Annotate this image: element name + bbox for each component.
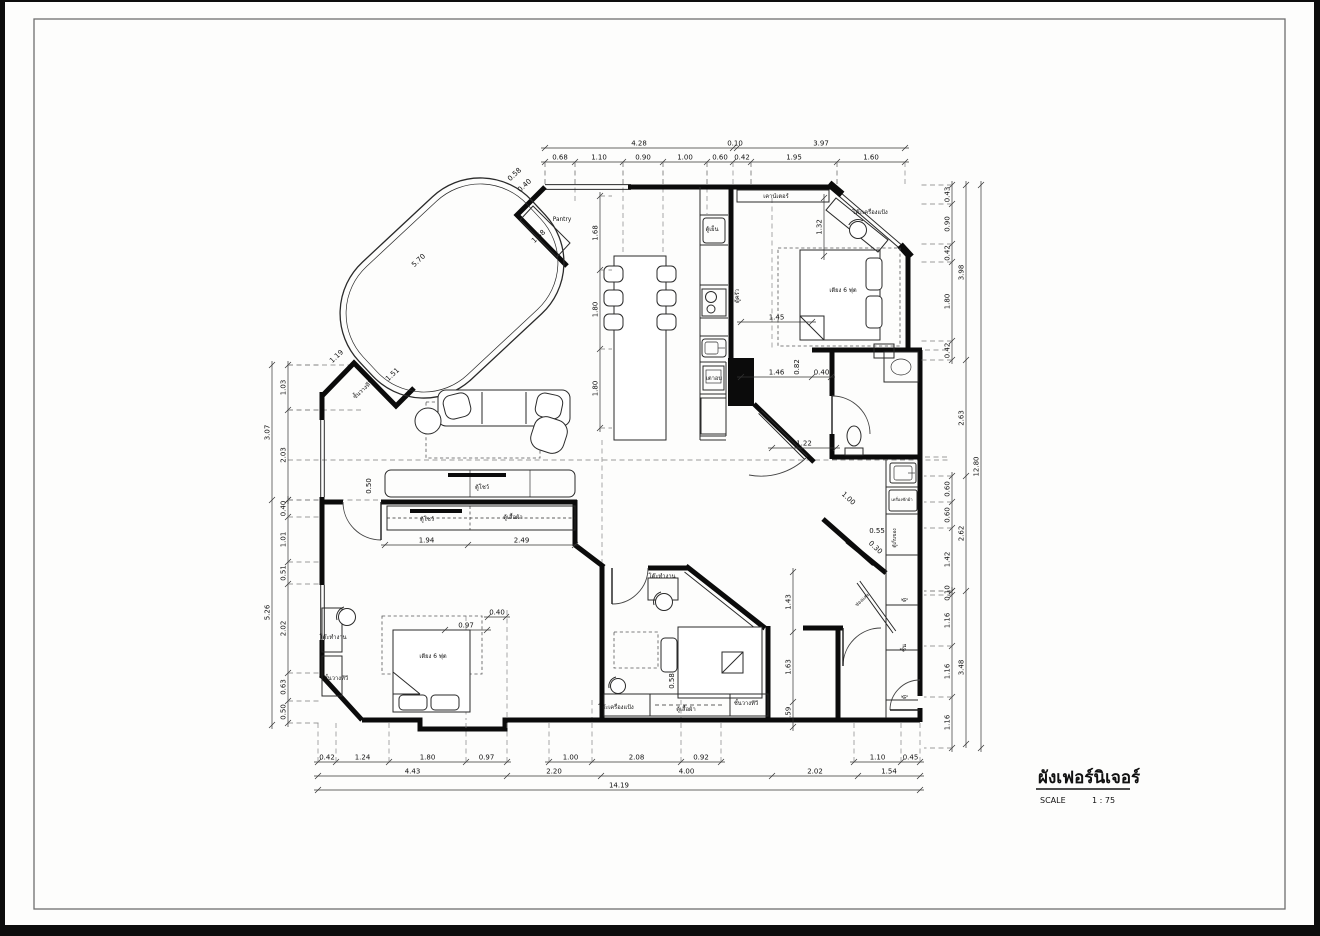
- dim-label: 1.42: [944, 552, 952, 568]
- dim-label: 1.00: [563, 754, 579, 762]
- dim-label: 1.80: [944, 294, 952, 310]
- dim-label: 1.16: [944, 663, 952, 679]
- dim-label: 1.24: [355, 754, 371, 762]
- dim-label: 1.95: [786, 154, 802, 162]
- bed3-pillow-2: [431, 695, 459, 710]
- bed1-pillow-1: [866, 258, 882, 290]
- dim-label: 0.97: [458, 622, 474, 630]
- dim-label: 0.68: [552, 154, 568, 162]
- dim-label: 4.00: [679, 768, 695, 776]
- dim-label: 0.60: [944, 507, 952, 523]
- dim-label: 0.50: [365, 478, 373, 494]
- room-label: Pantry: [553, 217, 572, 223]
- dim-label: 1.16: [944, 612, 952, 628]
- dim-label: 1.10: [870, 754, 886, 762]
- dim-label: 2.08: [629, 754, 645, 762]
- dim-label: 0.45: [903, 754, 919, 762]
- dim-label: 1.80: [592, 381, 600, 397]
- dim-label: 2.02: [807, 768, 823, 776]
- drawing-title: ผังเฟอร์นิเจอร์: [1038, 767, 1141, 788]
- dim-label: 3.98: [958, 265, 966, 281]
- dim-label: 0.55: [869, 527, 885, 535]
- dim-label: 1.45: [769, 314, 785, 322]
- dim-label: 0.40: [814, 369, 830, 377]
- dim-label: 0.92: [693, 754, 709, 762]
- dim-label: 1.32: [816, 219, 824, 235]
- room-label: ตู้ครัว: [733, 289, 741, 303]
- room-label: เตียง 6 ฟุต: [419, 653, 446, 660]
- dim-label: 0.40: [280, 501, 288, 517]
- dim-label: 2.20: [546, 768, 562, 776]
- room-label: ตู้โชว์: [475, 483, 489, 491]
- dim-label: 0.10: [944, 585, 952, 601]
- tv-top: [448, 473, 506, 477]
- dim-label: 2.02: [280, 621, 288, 637]
- dining-table: [614, 256, 666, 440]
- side-table: [415, 408, 441, 434]
- floor-plan-drawing: 4.280.103.970.681.100.901.000.600.421.95…: [0, 0, 1320, 936]
- room-label: โต๊ะทำงาน: [648, 572, 675, 580]
- dim-label: 1.60: [863, 154, 879, 162]
- room-label: เตาอบ: [706, 376, 722, 382]
- dim-label: 0.60: [712, 154, 728, 162]
- room-label: เคาน์เตอร์: [763, 192, 788, 200]
- bed2-pillow: [661, 638, 677, 672]
- dim-label: 1.80: [420, 754, 436, 762]
- dim-label: 0.42: [319, 754, 335, 762]
- dim-label: 1.01: [280, 532, 288, 548]
- dim-label: 0.42: [944, 245, 952, 261]
- dim-label: 0.51: [280, 565, 288, 581]
- dim-label: 4.43: [405, 768, 421, 776]
- dim-label: 1.94: [419, 537, 435, 545]
- dim-label: 1.63: [785, 659, 793, 675]
- dim-label: 2.62: [958, 526, 966, 542]
- dim-label: 1.54: [881, 768, 897, 776]
- tv-bottom: [410, 509, 462, 513]
- dim-label: 12.80: [973, 456, 981, 476]
- dim-label: 1.68: [592, 225, 600, 241]
- dim-label: 1.00: [677, 154, 693, 162]
- drawing-sheet: 4.280.103.970.681.100.901.000.600.421.95…: [0, 0, 1320, 936]
- bed2: [678, 627, 762, 698]
- dim-label: 4.28: [631, 140, 647, 148]
- scale-value: 1 : 75: [1092, 796, 1115, 805]
- dining-set: [604, 256, 676, 440]
- bed1-pillow-2: [866, 296, 882, 328]
- dim-label: 2.03: [280, 447, 288, 463]
- room-label: ตู้: [901, 598, 908, 602]
- dim-label: 3.97: [813, 140, 829, 148]
- dim-label: 0.40: [489, 609, 505, 617]
- dim-label: 0.42: [734, 154, 750, 162]
- dim-label: 2.49: [514, 537, 530, 545]
- dim-label: 3.07: [264, 425, 272, 441]
- dim-label: 5.26: [264, 604, 272, 620]
- dim-label: 1.22: [796, 440, 812, 448]
- dim-label: 0.50: [280, 704, 288, 720]
- dim-label: 0.90: [944, 216, 952, 232]
- dim-label: 1.43: [785, 594, 793, 610]
- dim-label: 1.10: [591, 154, 607, 162]
- room-label: โต๊ะเครื่องแป้ง: [598, 703, 634, 711]
- dim-label: 2.63: [958, 410, 966, 426]
- scale-label: SCALE: [1040, 796, 1066, 805]
- dim-label: 0.42: [944, 343, 952, 359]
- dim-label: 3.48: [958, 660, 966, 676]
- dim-label: 1.03: [280, 380, 288, 396]
- room-label: ตู้: [901, 695, 908, 699]
- bed3-pillow-1: [399, 695, 427, 710]
- room-label: เตียง 6 ฟุต: [829, 287, 856, 294]
- dim-label: 1.16: [944, 714, 952, 730]
- dim-label: 14.19: [609, 782, 629, 790]
- dim-label: 1.46: [769, 369, 785, 377]
- room-label: โต๊ะเครื่องแป้ง: [852, 208, 888, 216]
- dim-label: 0.90: [635, 154, 651, 162]
- dim-label: 0.97: [479, 754, 495, 762]
- room-label: เครื่องซักผ้า: [891, 496, 912, 502]
- room-label: โต๊ะทำงาน: [319, 633, 346, 641]
- dim-label: 0.43: [944, 187, 952, 203]
- dim-label: 0.58: [668, 673, 676, 689]
- dim-label: 0.59: [785, 707, 793, 723]
- service-shaft: [728, 358, 754, 406]
- dim-label: 0.60: [944, 481, 952, 497]
- dim-label: 0.82: [793, 359, 801, 375]
- dim-label: 1.80: [592, 302, 600, 318]
- room-label: ตู้โชว์: [420, 515, 434, 523]
- dim-label: 0.10: [727, 140, 743, 148]
- dim-label: 0.63: [280, 679, 288, 695]
